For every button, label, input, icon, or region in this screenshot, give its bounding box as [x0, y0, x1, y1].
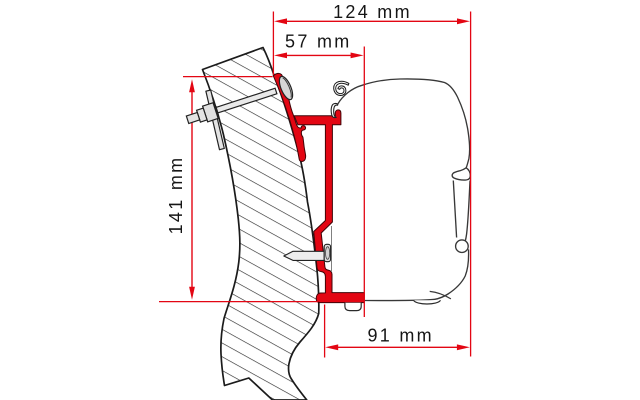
svg-text:141 mm: 141 mm [166, 156, 186, 235]
svg-text:124 mm: 124 mm [333, 2, 412, 22]
svg-text:57 mm: 57 mm [285, 32, 352, 52]
svg-text:91 mm: 91 mm [367, 325, 434, 345]
